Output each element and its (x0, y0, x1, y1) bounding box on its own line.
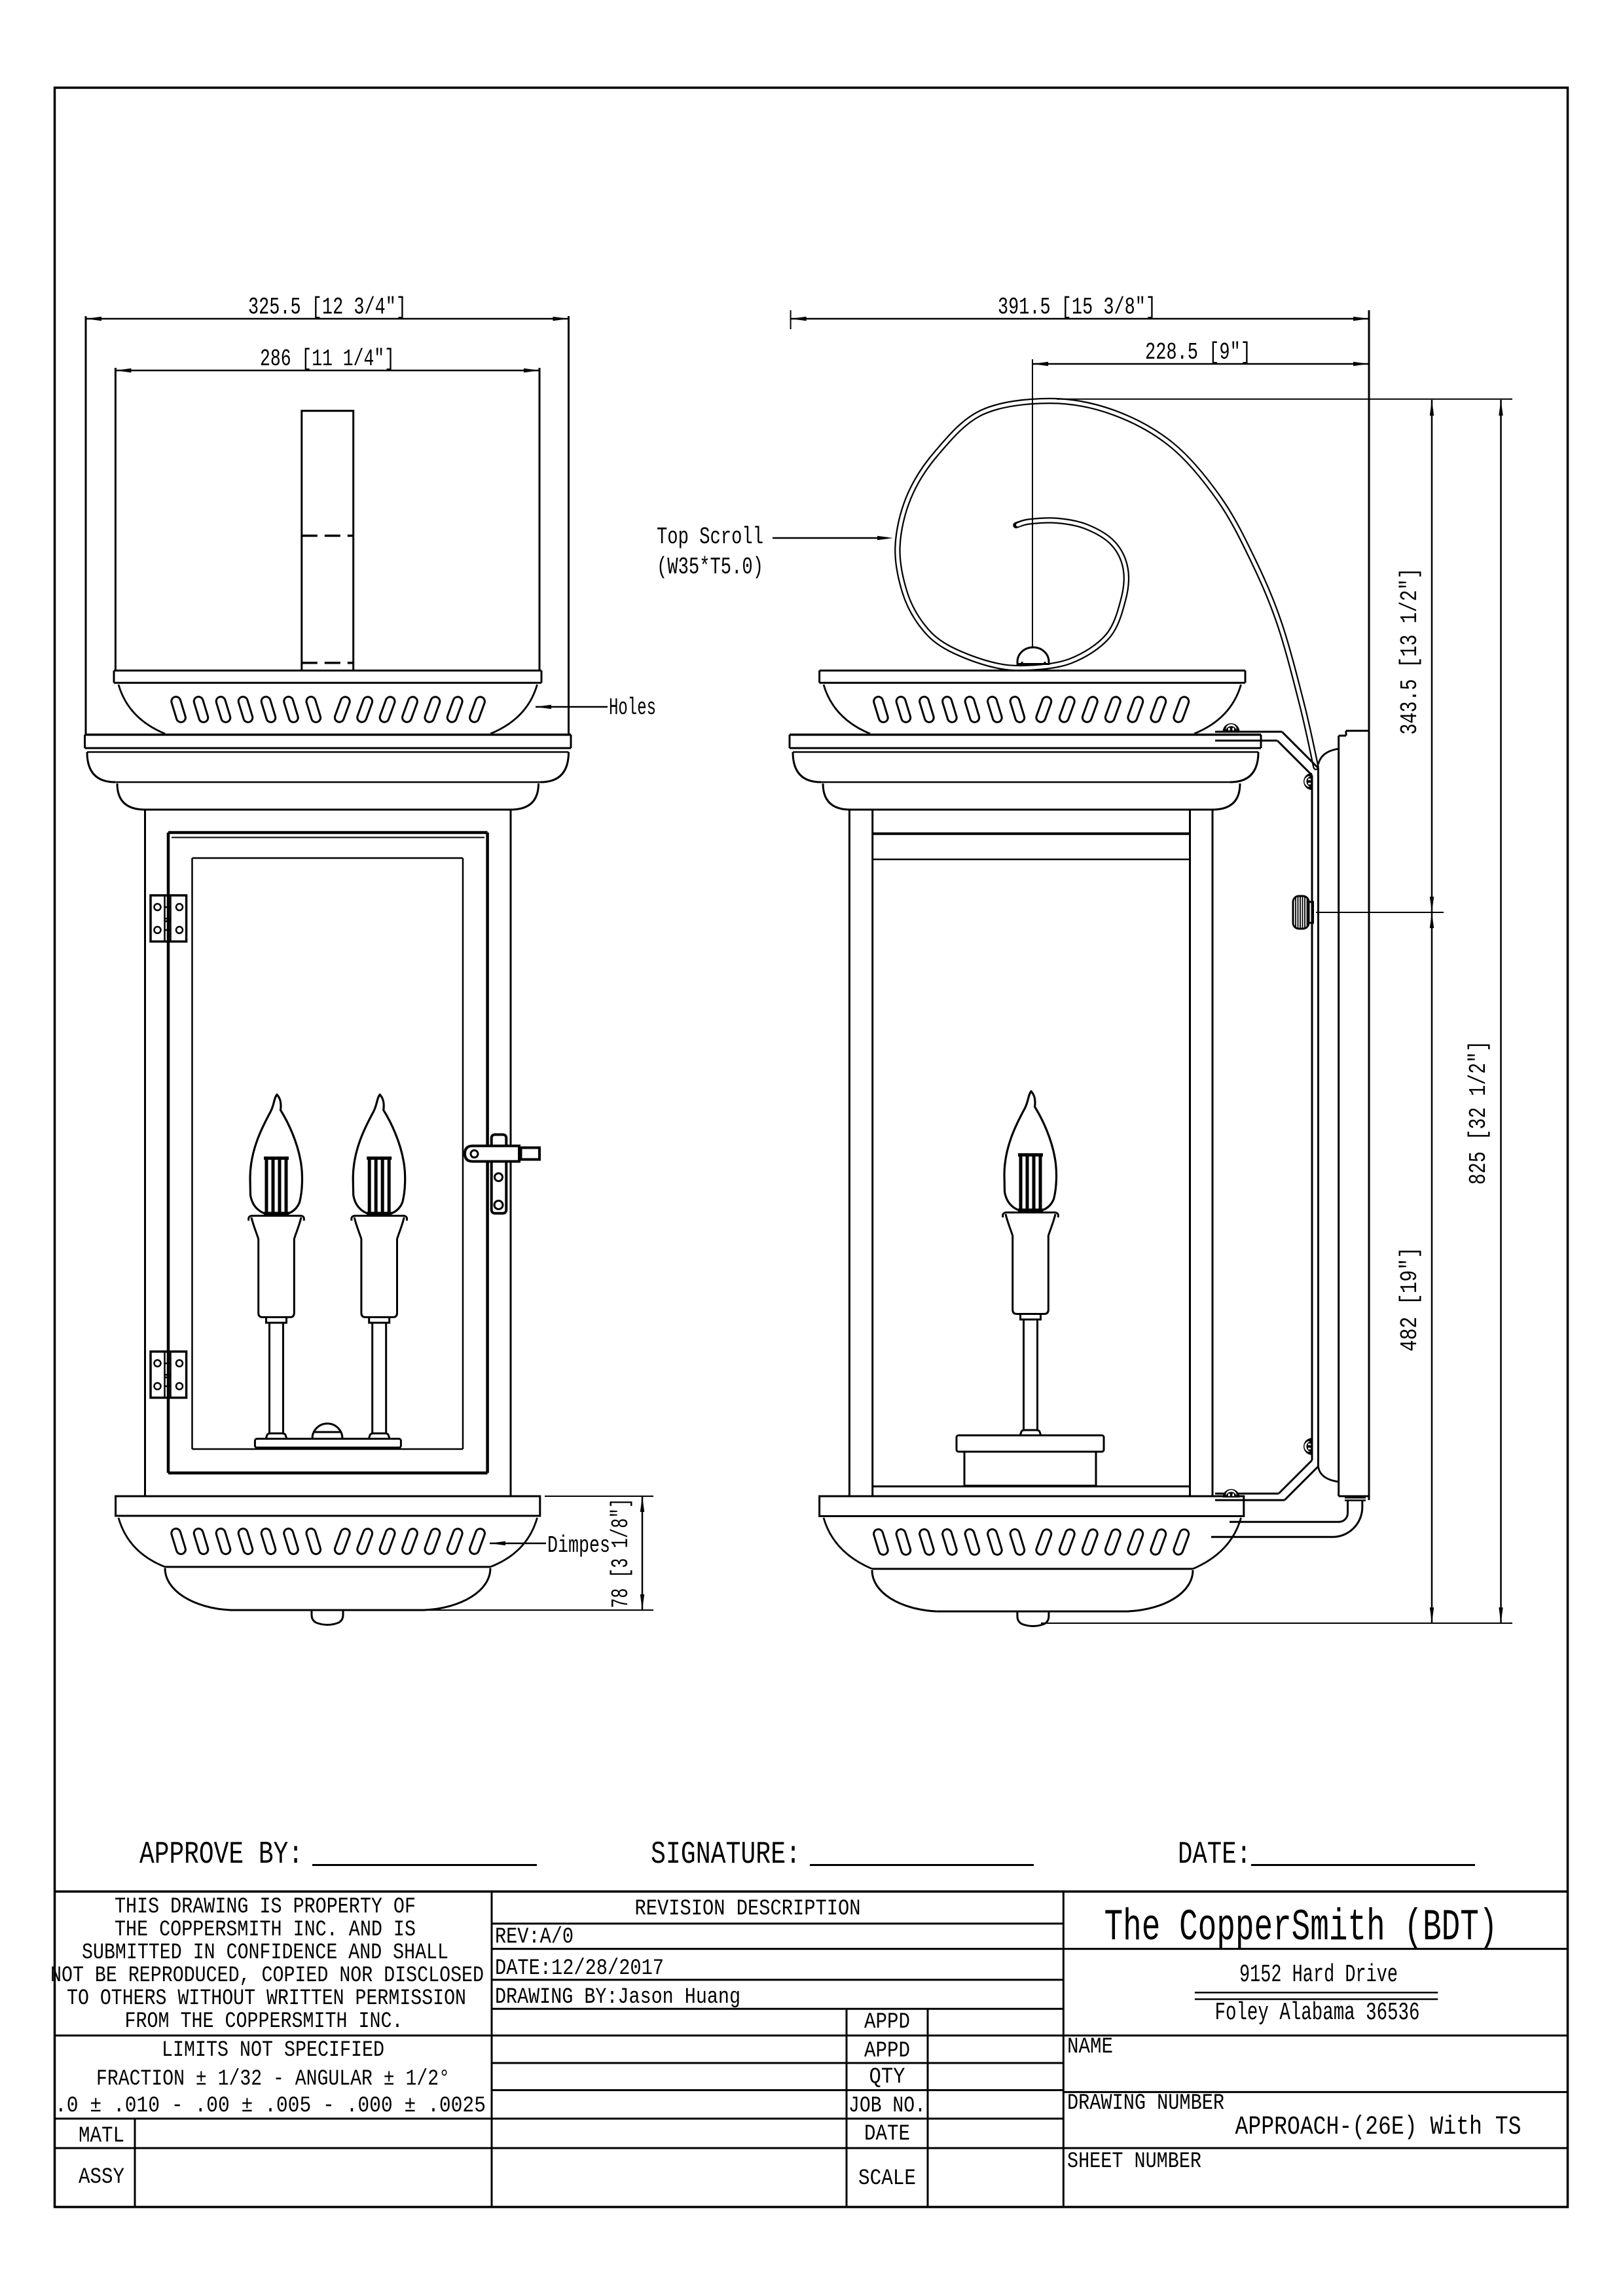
svg-text:Dimpes: Dimpes (547, 1532, 610, 1559)
svg-text:343.5 [13 1/2″]: 343.5 [13 1/2″] (1396, 568, 1423, 735)
svg-text:DATE:: DATE: (1178, 1837, 1251, 1873)
svg-text:APPD: APPD (864, 2010, 910, 2035)
svg-text:SCALE: SCALE (858, 2166, 916, 2191)
svg-text:LIMITS NOT SPECIFIED: LIMITS NOT SPECIFIED (162, 2038, 384, 2063)
svg-text:482 [19″]: 482 [19″] (1396, 1247, 1423, 1352)
svg-text:REVISION DESCRIPTION: REVISION DESCRIPTION (635, 1897, 861, 1922)
svg-text:DATE:12/28/2017: DATE:12/28/2017 (495, 1956, 664, 1981)
svg-text:APPROVE BY:: APPROVE BY: (139, 1837, 303, 1873)
svg-text:Top Scroll: Top Scroll (657, 524, 763, 550)
svg-text:ASSY: ASSY (79, 2165, 124, 2190)
svg-text:APPROACH-(26E) With TS: APPROACH-(26E) With TS (1235, 2113, 1522, 2142)
svg-text:SHEET NUMBER: SHEET NUMBER (1067, 2149, 1201, 2174)
svg-text:NOT BE REPRODUCED, COPIED NOR: NOT BE REPRODUCED, COPIED NOR DISCLOSED (50, 1964, 484, 1988)
svg-text:SUBMITTED IN CONFIDENCE AND SH: SUBMITTED IN CONFIDENCE AND SHALL (82, 1941, 448, 1965)
svg-text:Holes: Holes (609, 694, 656, 721)
svg-text:825 [32 1/2″]: 825 [32 1/2″] (1465, 1041, 1492, 1185)
svg-text:286 [11 1/4″]: 286 [11 1/4″] (260, 346, 395, 372)
svg-text:THE COPPERSMITH INC. AND IS: THE COPPERSMITH INC. AND IS (115, 1918, 416, 1943)
svg-text:REV:A/0: REV:A/0 (495, 1925, 574, 1950)
svg-text:FRACTION ± 1/32 - ANGULAR ± 1/: FRACTION ± 1/32 - ANGULAR ± 1/2° (96, 2067, 450, 2092)
svg-text:SIGNATURE:: SIGNATURE: (651, 1837, 801, 1873)
svg-text:9152 Hard Drive: 9152 Hard Drive (1239, 1961, 1398, 1989)
svg-text:.0 ± .010 - .00 ± .005 - .000: .0 ± .010 - .00 ± .005 - .000 ± .0025 (55, 2094, 486, 2119)
svg-text:Foley Alabama 36536: Foley Alabama 36536 (1215, 1999, 1420, 2027)
svg-text:FROM THE COPPERSMITH INC.: FROM THE COPPERSMITH INC. (125, 2009, 403, 2034)
svg-text:NAME: NAME (1067, 2035, 1113, 2060)
svg-text:325.5 [12 3/4″]: 325.5 [12 3/4″] (248, 294, 407, 321)
svg-text:228.5 [9″]: 228.5 [9″] (1145, 339, 1251, 366)
svg-text:THIS DRAWING IS PROPERTY OF: THIS DRAWING IS PROPERTY OF (115, 1895, 416, 1920)
svg-text:MATL: MATL (79, 2124, 124, 2149)
svg-text:DATE: DATE (864, 2122, 910, 2147)
svg-text:JOB NO.: JOB NO. (848, 2094, 926, 2119)
svg-text:TO OTHERS WITHOUT WRITTEN PERM: TO OTHERS WITHOUT WRITTEN PERMISSION (67, 1986, 466, 2011)
svg-text:DRAWING BY:Jason Huang: DRAWING BY:Jason Huang (495, 1985, 740, 2010)
svg-text:QTY: QTY (869, 2065, 905, 2090)
svg-text:78 [3 1/8″]: 78 [3 1/8″] (608, 1498, 634, 1608)
svg-text:DRAWING NUMBER: DRAWING NUMBER (1067, 2091, 1224, 2116)
svg-text:(W35*T5.0): (W35*T5.0) (657, 554, 763, 581)
svg-text:APPD: APPD (864, 2039, 910, 2064)
svg-text:The CopperSmith (BDT): The CopperSmith (BDT) (1104, 1903, 1498, 1953)
svg-text:391.5 [15 3/8″]: 391.5 [15 3/8″] (998, 294, 1156, 321)
